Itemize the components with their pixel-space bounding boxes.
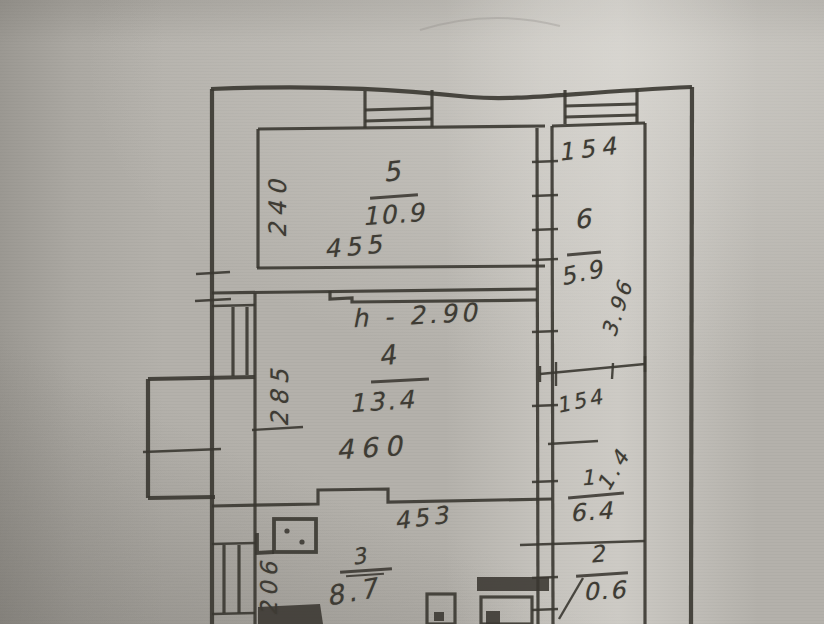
room3-width-dimension: 453 bbox=[393, 503, 453, 534]
bath-icon bbox=[481, 597, 532, 624]
hall1-area-label: 6.4 bbox=[569, 498, 615, 525]
room5-depth-dimension: 240 bbox=[266, 174, 290, 238]
room2-label-diagonal bbox=[559, 578, 583, 619]
room5-number-label: 5 bbox=[382, 157, 402, 186]
fixtures bbox=[258, 577, 549, 624]
window-icon-top-1 bbox=[365, 90, 432, 128]
floor-plan-scan: 5 10.9 455 240 154 6 5.9 3.96 h - 2.90 4… bbox=[0, 0, 824, 624]
outer-walls bbox=[211, 87, 692, 624]
divider-room5-room4 bbox=[212, 289, 537, 302]
sink-icon bbox=[477, 577, 549, 591]
room6-number-label: 6 bbox=[573, 205, 592, 232]
bay-window bbox=[148, 377, 255, 498]
window-icon-left-1 bbox=[212, 305, 255, 376]
room5-area-label: 10.9 bbox=[361, 200, 426, 229]
room4-number-label: 4 bbox=[376, 341, 397, 370]
room3-depth-dimension: 206 bbox=[258, 557, 281, 616]
stove-icon bbox=[257, 519, 316, 553]
room2-area-label: 0.6 bbox=[582, 578, 627, 604]
room5-width-dimension: 455 bbox=[323, 231, 388, 261]
room2-number-label: 2 bbox=[589, 542, 606, 566]
room4-depth-dimension: 285 bbox=[268, 363, 292, 427]
room4-ceiling-height-label: h - 2.90 bbox=[351, 300, 481, 332]
room6-width-dimension: 154 bbox=[557, 133, 623, 165]
divider-room4-room3 bbox=[212, 489, 552, 506]
window-icon-left-2 bbox=[212, 543, 255, 614]
room4-area-label: 13.4 bbox=[348, 387, 417, 417]
toilet-icon bbox=[427, 594, 455, 624]
paper-crease bbox=[420, 18, 560, 30]
room4-width-dimension: 460 bbox=[335, 432, 409, 464]
hall1-number-label: 1 bbox=[580, 467, 595, 489]
